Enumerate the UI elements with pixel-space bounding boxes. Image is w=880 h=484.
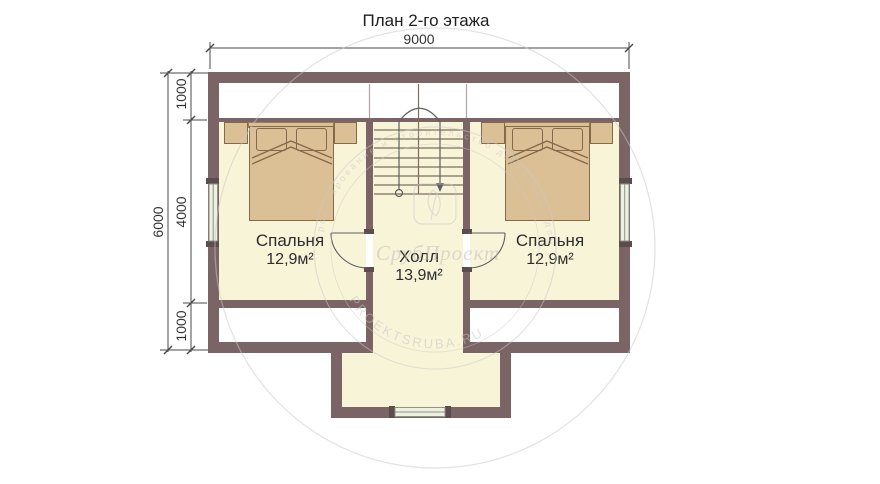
floor-plan: План 2-го этажа: [0, 0, 880, 484]
room-name: Спальня: [230, 231, 350, 250]
stair-arrow-icon: [436, 183, 444, 192]
page-title: План 2-го этажа: [320, 11, 532, 31]
room-label-hall: Холл 13,9м²: [369, 247, 469, 285]
window-right: [621, 184, 630, 241]
dimension-segment-value: 1000: [173, 78, 189, 109]
dimension-segment-value: 1000: [173, 310, 189, 341]
window-left: [209, 184, 218, 241]
dimension-segment-value: 4000: [173, 196, 189, 227]
plan-linework: 9000 6000 1000 4000 1000: [0, 0, 880, 484]
blanket-folds: [252, 141, 588, 164]
dimension-top: 9000: [206, 31, 633, 69]
room-label-bedroom-left: Спальня 12,9м²: [230, 231, 350, 269]
room-name: Спальня: [490, 231, 610, 250]
dimension-width-value: 9000: [403, 31, 434, 47]
dimension-left: 6000 1000 4000 1000: [150, 69, 208, 354]
room-area: 13,9м²: [369, 266, 469, 285]
stair-walk-line: [396, 108, 445, 196]
room-area: 12,9м²: [490, 250, 610, 269]
room-label-bedroom-right: Спальня 12,9м²: [490, 231, 610, 269]
dimension-height-value: 6000: [150, 206, 166, 237]
staircase: [370, 84, 467, 194]
window-bay: [395, 408, 445, 417]
room-area: 12,9м²: [230, 250, 350, 269]
room-name: Холл: [369, 247, 469, 266]
